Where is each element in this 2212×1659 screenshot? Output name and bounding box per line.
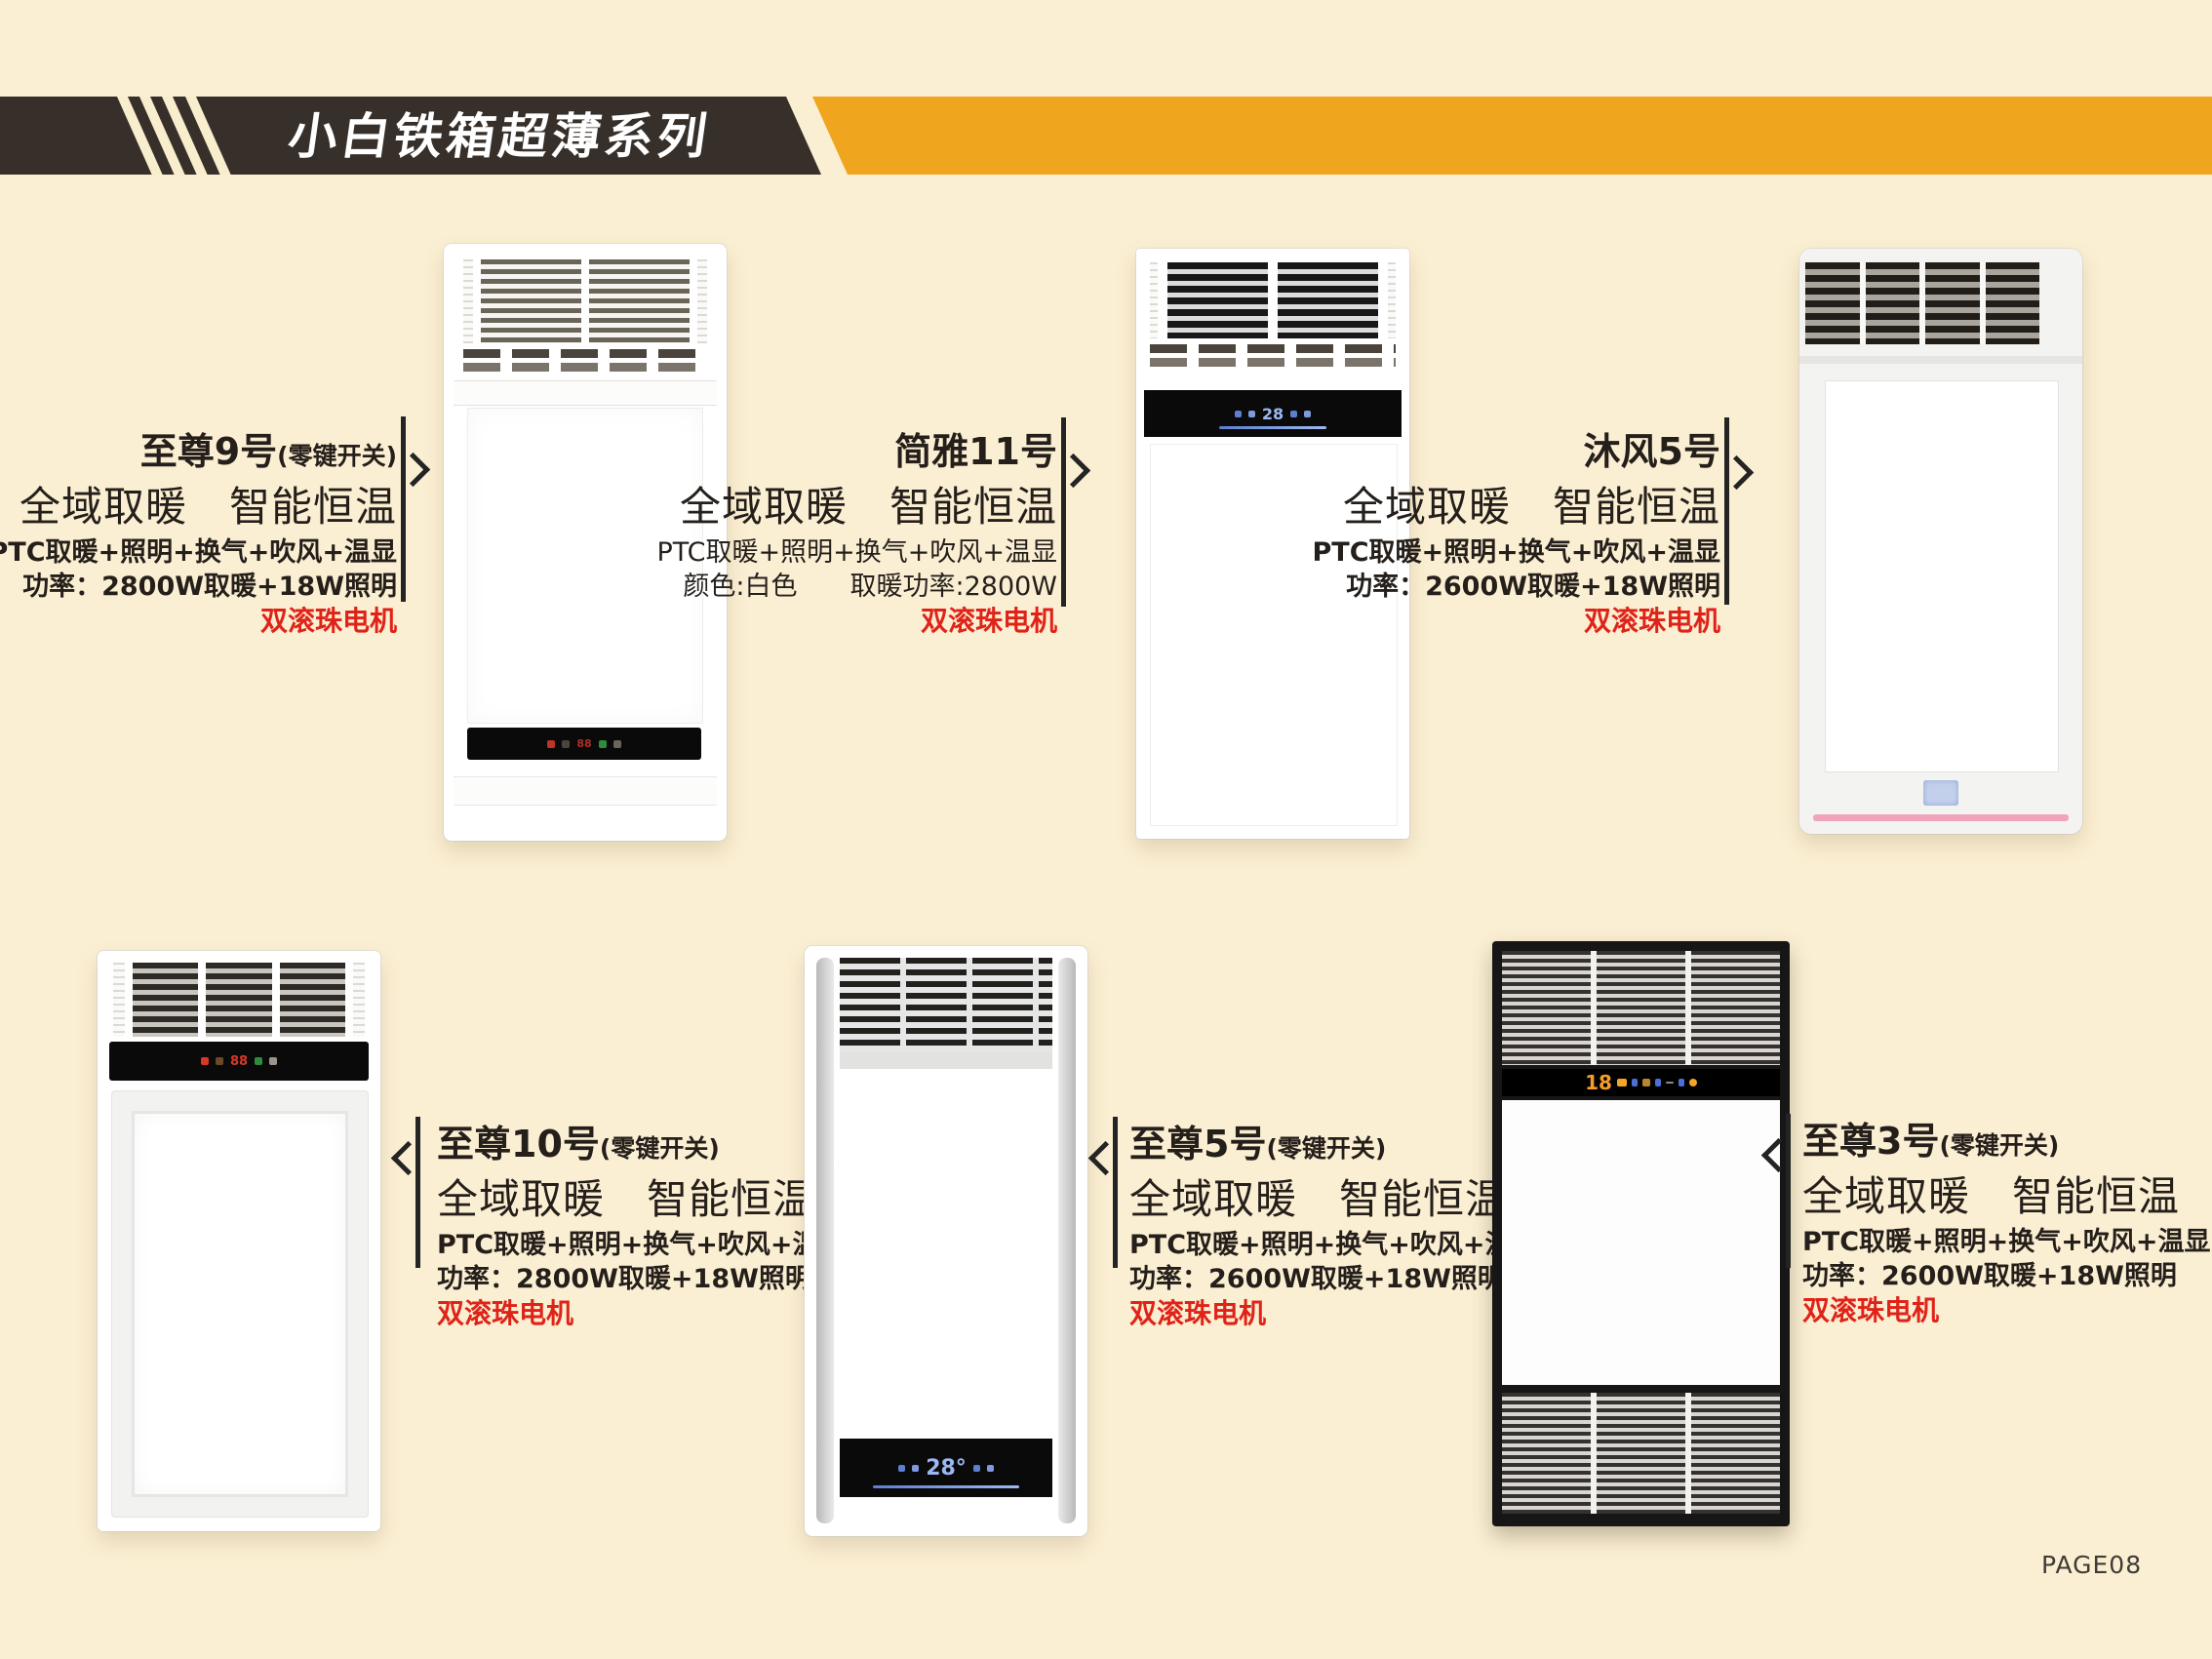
- product-name: 沐风5号: [1301, 432, 1720, 473]
- header-banner-accent: [812, 97, 2212, 175]
- top-grille: [840, 958, 1052, 1051]
- trim-band: [454, 776, 717, 806]
- product-photo-5: 28°: [805, 946, 1087, 1536]
- page-number: PAGE08: [2041, 1551, 2142, 1579]
- light-panel: [132, 1111, 348, 1497]
- product-motor: 双滚珠电机: [437, 1299, 856, 1329]
- chevron-right-icon: [1056, 454, 1090, 488]
- led-icon: [1666, 1082, 1674, 1084]
- top-grille: [1150, 262, 1396, 338]
- grille-slats: [1597, 1393, 1685, 1514]
- product-features: PTC取暖+照明+换气+吹风+温显: [1802, 1228, 2212, 1257]
- product-tagline: 全域取暖 智能恒温: [1301, 485, 1720, 530]
- led-icon: [1290, 411, 1297, 417]
- product-motor: 双滚珠电机: [1301, 607, 1720, 637]
- product-power: 功率：2800W取暖+18W照明: [0, 573, 397, 602]
- top-grille: [1502, 951, 1780, 1065]
- led-display: 28°: [840, 1439, 1052, 1497]
- callout-bracket: [1061, 417, 1066, 607]
- led-icon: [912, 1465, 919, 1472]
- green-indicator-icon: [599, 740, 607, 748]
- grille-fins: [113, 963, 125, 1037]
- panel-frame: [111, 1090, 369, 1518]
- callout-bracket: [1724, 417, 1729, 605]
- product-name: 至尊3号(零键开关): [1802, 1122, 2212, 1163]
- green-indicator-icon: [255, 1057, 262, 1065]
- bottom-grille: [1502, 1393, 1780, 1514]
- grille-fins: [1150, 262, 1158, 338]
- grille-slats: [1691, 1393, 1780, 1514]
- product-tagline: 全域取暖 智能恒温: [1802, 1174, 2212, 1219]
- red-indicator-icon: [201, 1057, 209, 1065]
- product-name-suffix: (零键开关): [1266, 1134, 1386, 1163]
- top-grille: [463, 259, 707, 343]
- grille-slats: [481, 259, 581, 343]
- grille-fins: [1388, 262, 1396, 338]
- led-icon: [1617, 1079, 1627, 1086]
- grille-slats: [589, 259, 690, 343]
- vent-dash-row: [463, 363, 707, 372]
- led-icon: [987, 1465, 994, 1472]
- product-power: 功率：2800W取暖+18W照明: [437, 1265, 856, 1294]
- vent-dash-row: [463, 349, 707, 358]
- product-tagline: 全域取暖 智能恒温: [1129, 1177, 1549, 1222]
- product-features: PTC取暖+照明+换气+吹风+温显: [1129, 1231, 1549, 1260]
- product-label-4: 至尊10号(零键开关) 全域取暖 智能恒温 PTC取暖+照明+换气+吹风+温显 …: [437, 1125, 856, 1329]
- led-icon: [1235, 411, 1242, 417]
- light-panel: [1502, 1100, 1780, 1385]
- led-display: 18: [1502, 1069, 1780, 1096]
- chevron-right-icon: [396, 453, 430, 487]
- trim-band: [840, 1051, 1052, 1069]
- vent-dash-row: [1150, 344, 1396, 353]
- grille-slats: [1986, 262, 2040, 344]
- product-name-suffix: (零键开关): [277, 442, 397, 470]
- product-label-5: 至尊5号(零键开关) 全域取暖 智能恒温 PTC取暖+照明+换气+吹风+温显 功…: [1129, 1125, 1549, 1329]
- led-icon: [1655, 1079, 1661, 1086]
- product-power: 功率：2600W取暖+18W照明: [1129, 1265, 1549, 1294]
- led-icon: [1304, 411, 1311, 417]
- grille-slats: [133, 963, 198, 1037]
- top-grille: [1805, 262, 2039, 344]
- chevron-left-icon: [391, 1141, 425, 1175]
- product-tagline: 全域取暖 智能恒温: [638, 485, 1057, 530]
- led-icon: [1679, 1079, 1684, 1086]
- grille-slats: [1805, 262, 1860, 344]
- product-power: 颜色:白色 取暖功率:2800W: [638, 573, 1057, 602]
- display-panel: 18: [1502, 1069, 1780, 1096]
- product-name: 至尊9号(零键开关): [0, 432, 397, 473]
- grille-fins: [463, 259, 473, 343]
- series-title: 小白铁箱超薄系列: [285, 107, 800, 166]
- grille-slats: [206, 963, 271, 1037]
- product-photo-4: 88: [98, 951, 380, 1531]
- indicator-icon: [613, 740, 621, 748]
- indicator-icon: [216, 1057, 223, 1065]
- callout-bracket: [415, 1117, 420, 1268]
- grille-slats: [1502, 951, 1591, 1065]
- product-photo-6: 18: [1492, 941, 1790, 1526]
- led-icon: [898, 1465, 905, 1472]
- product-features: PTC取暖+照明+换气+吹风+温显: [1301, 538, 1720, 568]
- red-indicator-icon: [547, 740, 555, 748]
- display-panel: 28°: [840, 1439, 1052, 1497]
- vent-dashes: [463, 349, 707, 375]
- light-panel: [840, 1069, 1052, 1434]
- vent-dash-row: [1150, 358, 1396, 367]
- led-indicators: 88: [467, 728, 701, 760]
- top-grille: [113, 963, 365, 1037]
- light-panel: [1825, 380, 2059, 772]
- led-digits: 28°: [926, 1456, 967, 1481]
- grille-slats: [280, 963, 345, 1037]
- product-label-6: 至尊3号(零键开关) 全域取暖 智能恒温 PTC取暖+照明+换气+吹风+温显 功…: [1802, 1122, 2212, 1326]
- product-power: 功率：2600W取暖+18W照明: [1301, 573, 1720, 602]
- led-digits: 18: [1585, 1071, 1612, 1094]
- product-label-2: 简雅11号 全域取暖 智能恒温 PTC取暖+照明+换气+吹风+温显 颜色:白色 …: [638, 432, 1057, 637]
- chevron-right-icon: [1719, 455, 1754, 490]
- led-display: 28: [1144, 390, 1402, 437]
- product-name: 至尊10号(零键开关): [437, 1125, 856, 1165]
- product-label-1: 至尊9号(零键开关) 全域取暖 智能恒温 PTC取暖+照明+换气+吹风+温显 功…: [0, 432, 397, 637]
- product-motor: 双滚珠电机: [638, 607, 1057, 637]
- led-digits: 88: [576, 737, 591, 750]
- indicator-icon: [562, 740, 570, 748]
- logo-emblem: [1923, 780, 1958, 806]
- product-features: PTC取暖+照明+换气+吹风+温显: [638, 538, 1057, 568]
- product-name: 简雅11号: [638, 432, 1057, 473]
- product-photo-3: [1799, 249, 2082, 834]
- product-motor: 双滚珠电机: [0, 607, 397, 637]
- grille-slats: [1167, 262, 1268, 338]
- display-panel: 88: [467, 728, 701, 760]
- led-bar: [873, 1485, 1019, 1488]
- product-name: 至尊5号(零键开关): [1129, 1125, 1549, 1165]
- product-label-3: 沐风5号 全域取暖 智能恒温 PTC取暖+照明+换气+吹风+温显 功率：2600…: [1301, 432, 1720, 637]
- product-features: PTC取暖+照明+换气+吹风+温显: [437, 1231, 856, 1260]
- callout-bracket: [1786, 1114, 1791, 1268]
- led-icon: [1642, 1079, 1650, 1086]
- product-tagline: 全域取暖 智能恒温: [437, 1177, 856, 1222]
- vent-dashes: [1150, 344, 1396, 372]
- side-rail: [816, 958, 834, 1523]
- trim-band: [1799, 356, 2082, 364]
- product-name-suffix: (零键开关): [1939, 1131, 2059, 1160]
- product-motor: 双滚珠电机: [1129, 1299, 1549, 1329]
- grille-slats: [1502, 1393, 1591, 1514]
- product-name-suffix: (零键开关): [600, 1134, 720, 1163]
- callout-bracket: [1113, 1117, 1118, 1268]
- pink-accent-strip: [1813, 814, 2069, 821]
- led-bar: [1219, 426, 1326, 429]
- led-digits: 28: [1262, 405, 1284, 423]
- display-panel: 88: [109, 1042, 369, 1081]
- chevron-left-icon: [1088, 1141, 1123, 1175]
- led-icon: [1632, 1079, 1638, 1086]
- indicator-icon: [269, 1057, 277, 1065]
- trim-band: [454, 380, 717, 406]
- display-panel: 28: [1144, 390, 1402, 437]
- grille-slats: [1866, 262, 1920, 344]
- side-rail: [1058, 958, 1076, 1523]
- callout-bracket: [401, 416, 406, 602]
- grille-slats: [1925, 262, 1980, 344]
- led-icon: [1689, 1079, 1697, 1086]
- led-digits: 88: [230, 1054, 248, 1069]
- led-indicators: 88: [109, 1042, 369, 1081]
- grille-slats: [1691, 951, 1780, 1065]
- grille-fins: [697, 259, 707, 343]
- led-icon: [1248, 411, 1255, 417]
- grille-slats: [1597, 951, 1685, 1065]
- grille-slats: [1278, 262, 1378, 338]
- grille-fins: [353, 963, 365, 1037]
- product-motor: 双滚珠电机: [1802, 1296, 2212, 1326]
- led-icon: [973, 1465, 980, 1472]
- product-tagline: 全域取暖 智能恒温: [0, 485, 397, 530]
- catalog-page: 小白铁箱超薄系列 至尊9号(零键开关) 全域取暖 智能恒温 PTC取暖+照明+换…: [0, 0, 2212, 1659]
- product-power: 功率：2600W取暖+18W照明: [1802, 1262, 2212, 1291]
- product-features: PTC取暖+照明+换气+吹风+温显: [0, 538, 397, 568]
